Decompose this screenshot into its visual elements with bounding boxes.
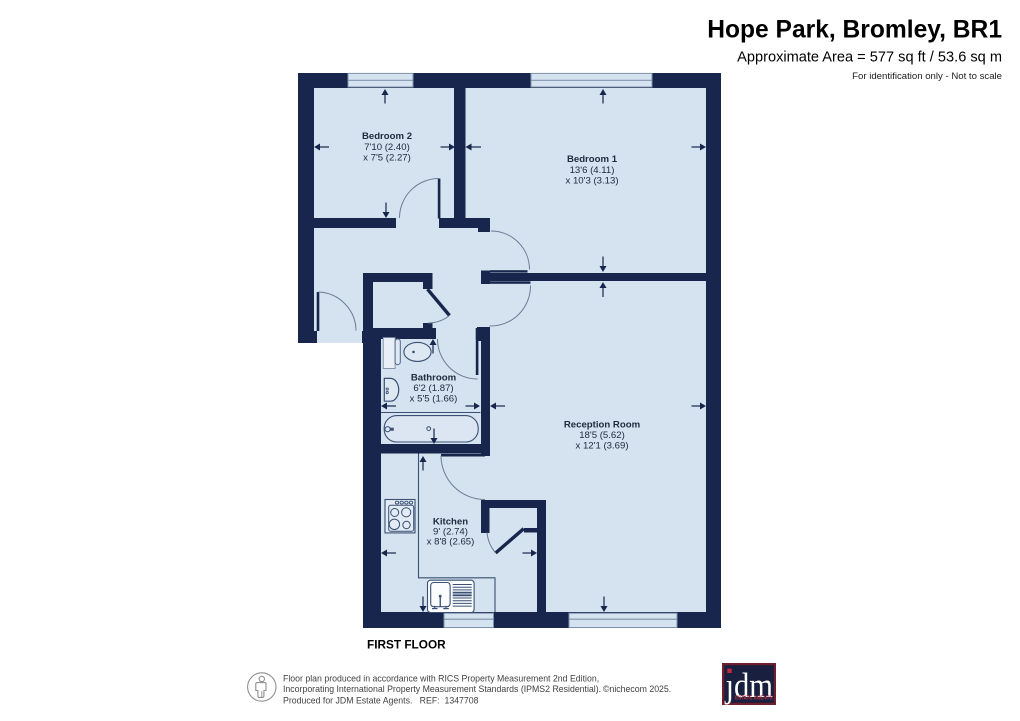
- svg-text:x 10'3 (3.13): x 10'3 (3.13): [565, 175, 618, 186]
- svg-text:Bedroom 1: Bedroom 1: [567, 154, 618, 165]
- svg-text:7'10 (2.40): 7'10 (2.40): [364, 142, 410, 153]
- svg-text:x 5'5 (1.66): x 5'5 (1.66): [410, 393, 458, 404]
- svg-text:Reception Room: Reception Room: [564, 420, 640, 431]
- svg-text:ESTATE AGENTS: ESTATE AGENTS: [735, 696, 773, 702]
- svg-text:18'5 (5.62): 18'5 (5.62): [579, 430, 625, 441]
- svg-text:Bedroom 2: Bedroom 2: [362, 131, 412, 142]
- svg-text:Incorporating International Pr: Incorporating International Property Mea…: [283, 684, 601, 694]
- svg-text:x 12'1 (3.69): x 12'1 (3.69): [575, 441, 628, 452]
- svg-text:x 7'5 (2.27): x 7'5 (2.27): [363, 153, 411, 164]
- svg-text:Hope Park, Bromley, BR1: Hope Park, Bromley, BR1: [707, 16, 1002, 43]
- svg-text:Produced for JDM Estate Agents: Produced for JDM Estate Agents. REF: 134…: [283, 695, 479, 705]
- svg-text:Approximate Area = 577 sq ft /: Approximate Area = 577 sq ft / 53.6 sq m: [737, 50, 1002, 66]
- svg-text:x 8'8 (2.65): x 8'8 (2.65): [427, 536, 475, 547]
- svg-text:13'6 (4.11): 13'6 (4.11): [570, 165, 615, 176]
- svg-text:©nichecom 2025.: ©nichecom 2025.: [603, 684, 671, 694]
- svg-text:For identification only - Not: For identification only - Not to scale: [852, 71, 1002, 82]
- svg-text:Floor plan produced in accorda: Floor plan produced in accordance with R…: [283, 674, 599, 684]
- svg-text:FIRST FLOOR: FIRST FLOOR: [367, 637, 446, 651]
